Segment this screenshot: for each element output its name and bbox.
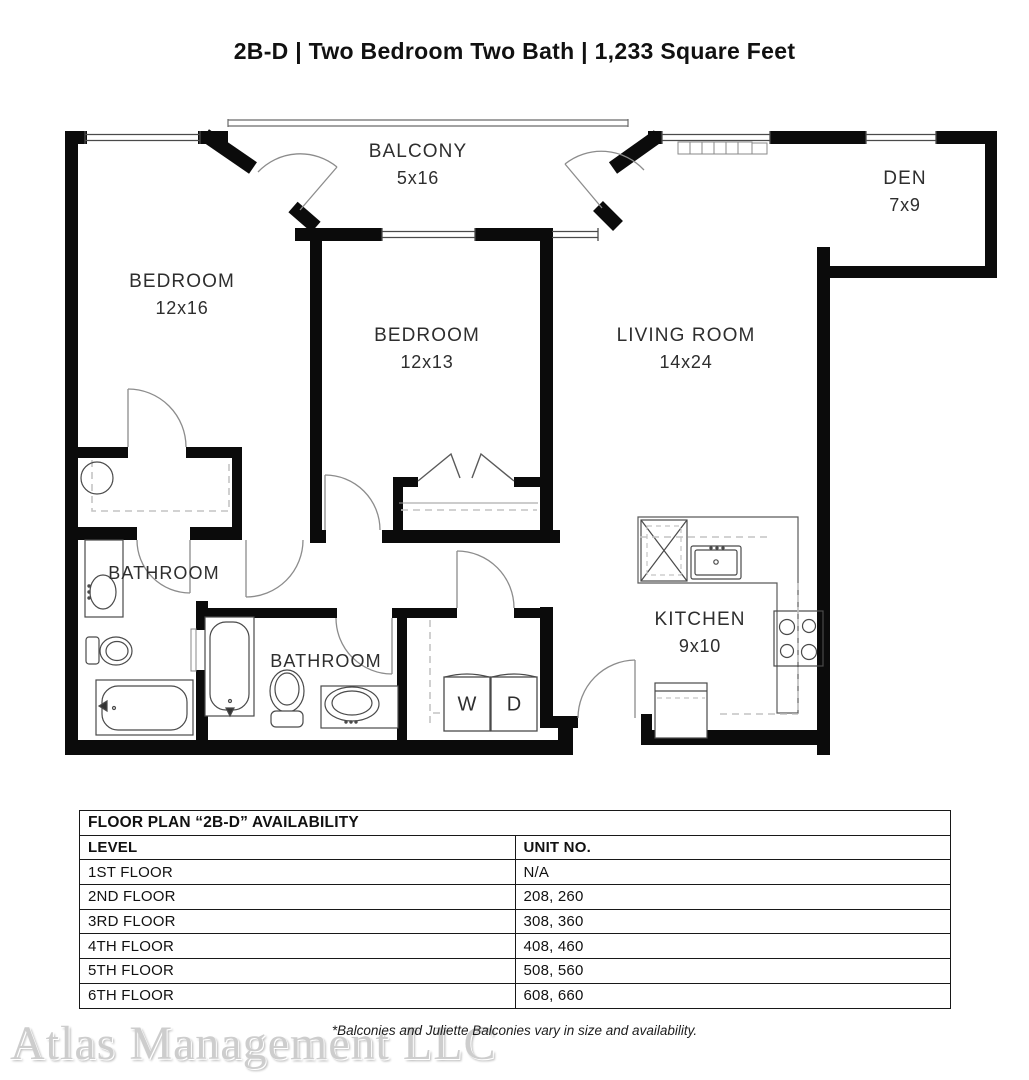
room-label-balcony: BALCONY 5x16 [369,139,468,191]
room-label-bedroom-1: BEDROOM 12x16 [129,269,235,321]
room-dims: 7x9 [883,192,926,218]
door-balcony-right [565,151,644,208]
washer-label: W [458,694,477,717]
door-bedroom2 [325,475,380,530]
room-name: BATHROOM [108,560,219,586]
bathtub-1 [96,680,193,735]
table-title-row: FLOOR PLAN “2B-D” AVAILABILITY [80,811,951,836]
table-title: FLOOR PLAN “2B-D” AVAILABILITY [80,811,951,836]
cell-units: 408, 460 [515,934,951,959]
room-name: BATHROOM [270,648,381,674]
room-label-living-room: LIVING ROOM 14x24 [617,323,756,375]
table-header-row: LEVEL UNIT NO. [80,835,951,860]
toilet-1 [86,637,132,665]
balcony-footnote: *Balconies and Juliette Balconies vary i… [0,1023,1029,1038]
cell-units: 508, 560 [515,959,951,984]
room-dims: 12x16 [129,295,235,321]
table-row: 1ST FLOOR N/A [80,860,951,885]
room-label-den: DEN 7x9 [883,166,926,218]
room-name: LIVING ROOM [617,323,756,349]
cell-level: 1ST FLOOR [80,860,516,885]
dryer-label: D [507,694,521,717]
availability-table: FLOOR PLAN “2B-D” AVAILABILITY LEVEL UNI… [79,810,951,1009]
room-dims: 9x10 [654,633,745,659]
cell-level: 2ND FLOOR [80,885,516,910]
room-name: KITCHEN [654,607,745,633]
floor-plan-page: 2B-D | Two Bedroom Two Bath | 1,233 Squa… [0,0,1029,1080]
room-name: BEDROOM [374,323,480,349]
room-dims: 5x16 [369,165,468,191]
room-dims: 14x24 [617,349,756,375]
bathtub-2 [205,617,254,716]
room-label-bathroom-2: BATHROOM [270,648,381,674]
room-label-bedroom-2: BEDROOM 12x13 [374,323,480,375]
table-row: 2ND FLOOR 208, 260 [80,885,951,910]
door-balcony-left [258,154,337,210]
vanity-sink-2 [321,686,398,728]
door-laundry [457,551,514,608]
column-header-level: LEVEL [80,835,516,860]
balcony-railing [228,119,628,127]
room-name: BALCONY [369,139,468,165]
cell-units: N/A [515,860,951,885]
column-header-unit: UNIT NO. [515,835,951,860]
baseboard-heater [678,142,767,154]
toilet-2 [270,670,304,727]
room-label-bathroom-1: BATHROOM [108,560,219,586]
kitchen-sink [691,546,741,579]
cell-level: 4TH FLOOR [80,934,516,959]
table-row: 5TH FLOOR 508, 560 [80,959,951,984]
door-bedroom1-closet [128,389,186,447]
room-name: DEN [883,166,926,192]
cell-units: 608, 660 [515,983,951,1008]
cell-units: 208, 260 [515,885,951,910]
cell-level: 6TH FLOOR [80,983,516,1008]
table-row: 6TH FLOOR 608, 660 [80,983,951,1008]
refrigerator [655,683,707,738]
room-label-kitchen: KITCHEN 9x10 [654,607,745,659]
door-unit-entry [578,660,635,718]
table-row: 4TH FLOOR 408, 460 [80,934,951,959]
door-bedroom1-entry [246,540,303,597]
dishwasher [641,520,687,581]
cell-units: 308, 360 [515,909,951,934]
room-name: BEDROOM [129,269,235,295]
table-row: 3RD FLOOR 308, 360 [80,909,951,934]
walkin-closet [81,460,229,511]
room-dims: 12x13 [374,349,480,375]
cell-level: 5TH FLOOR [80,959,516,984]
cell-level: 3RD FLOOR [80,909,516,934]
